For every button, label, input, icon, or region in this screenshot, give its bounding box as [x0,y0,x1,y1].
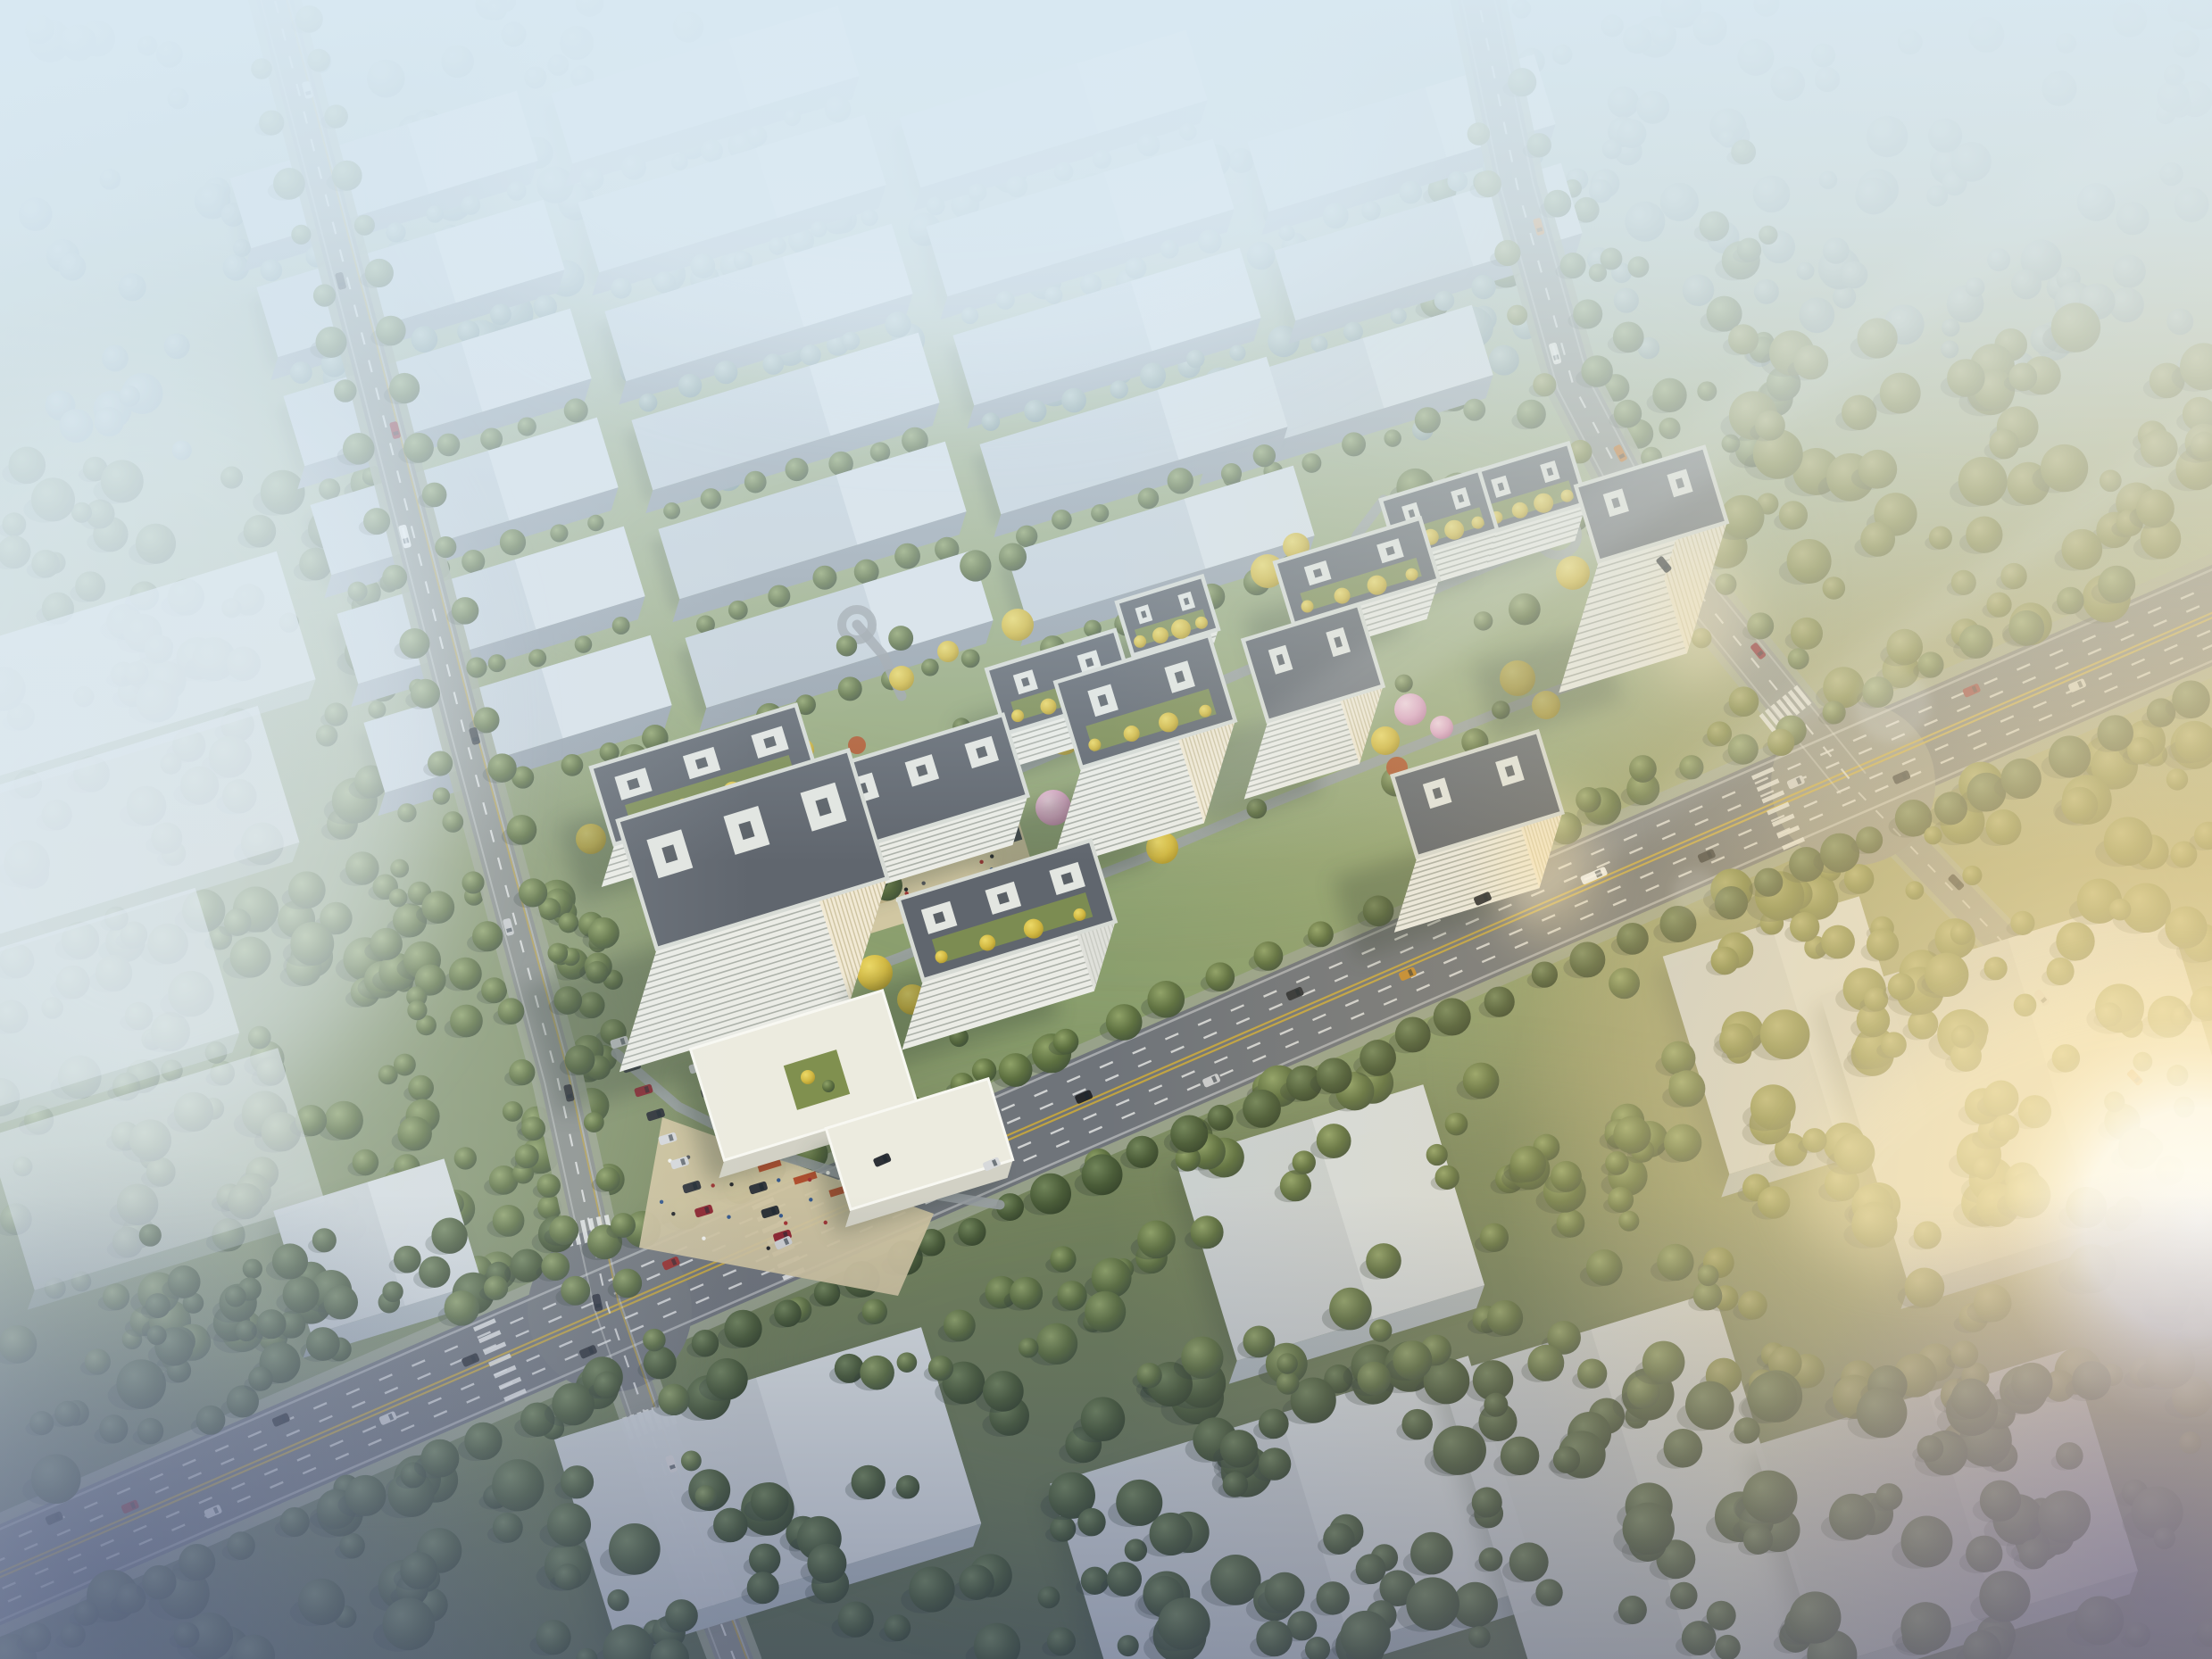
atmosphere-layer [0,0,2212,1659]
aerial-rendering-canvas [0,0,2212,1659]
aerial-development-rendering [0,0,2212,1659]
